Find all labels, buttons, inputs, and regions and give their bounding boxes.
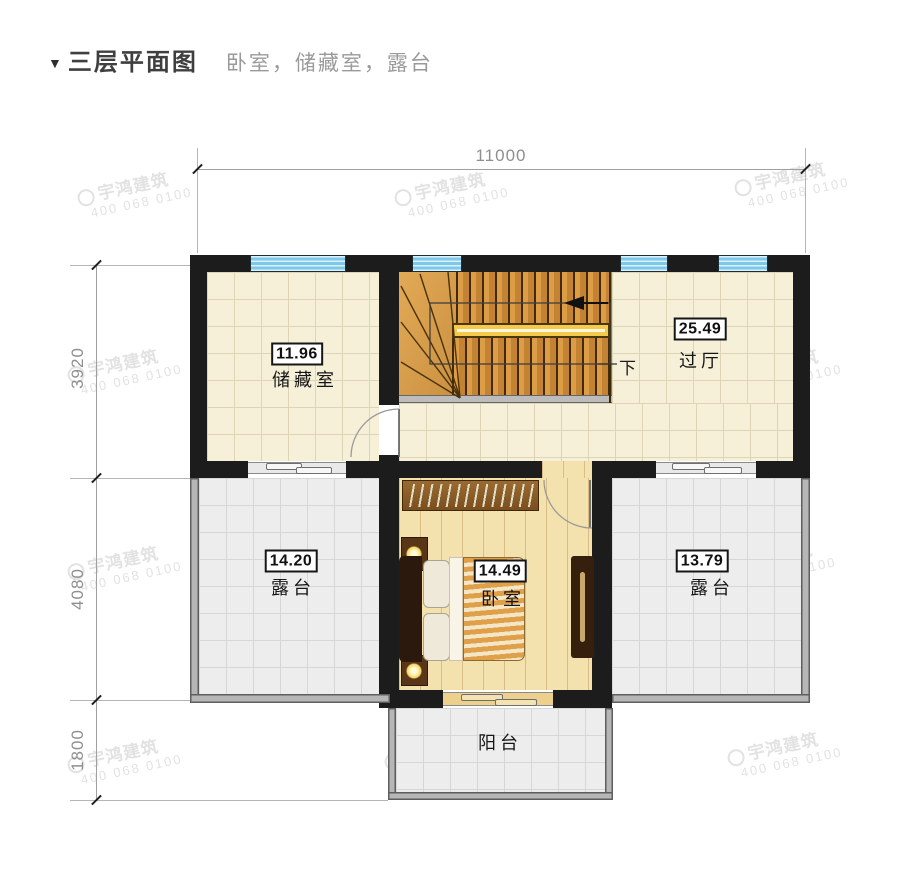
- door-panel: [296, 467, 332, 474]
- door-panel: [704, 467, 742, 474]
- wall-segment: [553, 690, 612, 708]
- wardrobe: [402, 480, 539, 511]
- wall-left: [190, 255, 207, 478]
- wall-segment: [668, 255, 718, 272]
- window: [620, 255, 668, 272]
- area-badge-terrace-left: 14.20: [265, 550, 318, 573]
- room-label-balcony: 阳台: [478, 729, 522, 755]
- dresser-handle: [580, 572, 585, 642]
- area-badge-bedroom: 14.49: [474, 560, 527, 583]
- door-panel: [495, 699, 537, 706]
- bed-headboard: [399, 556, 422, 662]
- extension-line: [70, 800, 388, 801]
- dimension-label-lower: 1800: [68, 729, 88, 771]
- wall-segment: [346, 461, 542, 478]
- parapet-terrace-left: [190, 694, 390, 703]
- parapet-balcony: [605, 708, 613, 800]
- sliding-door-terrace-left: [248, 462, 346, 474]
- area-badge-terrace-right: 13.79: [676, 550, 729, 573]
- window: [718, 255, 768, 272]
- window: [250, 255, 346, 272]
- stair-handrail: [452, 323, 610, 338]
- wall-segment: [756, 461, 810, 478]
- parapet-terrace-left: [190, 478, 199, 703]
- extension-line: [70, 700, 190, 701]
- room-label-bedroom: 卧室: [481, 585, 525, 611]
- hall-floor: [399, 403, 793, 461]
- extension-line: [197, 148, 198, 253]
- watermark: 宇鸿建筑400 068 0100: [726, 727, 844, 783]
- wall-segment: [190, 461, 248, 478]
- stair-flight-upper: [456, 272, 610, 323]
- watermark: 宇鸿建筑400 068 0100: [76, 167, 194, 223]
- room-label-terrace-left: 露台: [271, 574, 315, 600]
- room-label-storage: 储藏室: [272, 366, 338, 392]
- parapet-terrace-right: [801, 478, 810, 703]
- dimension-line-left: [96, 265, 97, 801]
- hanger-icons: [406, 484, 535, 507]
- area-badge-hall: 25.49: [674, 318, 727, 341]
- wall-bedroom-left: [379, 478, 399, 708]
- wall-storage-right: [379, 268, 399, 405]
- area-badge-storage: 11.96: [271, 343, 323, 366]
- extension-line: [70, 478, 190, 479]
- window: [412, 255, 462, 272]
- extension-line: [805, 148, 806, 253]
- bed-blanket-fold: [449, 557, 463, 661]
- dimension-line-top: [197, 169, 806, 170]
- plan-title: 三层平面图: [68, 42, 198, 77]
- dimension-label-width: 11000: [475, 146, 526, 166]
- dresser: [571, 556, 594, 658]
- sliding-door-terrace-right: [656, 462, 756, 474]
- room-label-terrace-right: 露台: [690, 574, 734, 600]
- watermark: 宇鸿建筑400 068 0100: [393, 167, 511, 223]
- pillow: [423, 613, 450, 661]
- page-title: ▼ 三层平面图 卧室，储藏室，露台: [48, 42, 433, 77]
- watermark: 宇鸿建筑400 068 0100: [733, 157, 851, 213]
- parapet-balcony: [388, 792, 613, 800]
- extension-line: [70, 265, 190, 266]
- dimension-label-upper: 3920: [68, 347, 88, 389]
- stair-edge-line: [609, 272, 611, 403]
- down-triangle-icon: ▼: [48, 55, 62, 71]
- parapet-terrace-right: [612, 694, 810, 703]
- room-label-hall: 过厅: [679, 347, 723, 373]
- dimension-label-middle: 4080: [68, 568, 88, 610]
- stair-landing-edge: [399, 395, 612, 403]
- stair-flight-lower: [452, 338, 610, 395]
- wall-right: [793, 255, 810, 478]
- floor-plan-page: ▼ 三层平面图 卧室，储藏室，露台 宇鸿建筑400 068 0100 宇鸿建筑4…: [0, 0, 910, 892]
- sliding-door-balcony: [443, 692, 553, 706]
- bedroom-door-opening: [542, 461, 592, 478]
- stair-down-label: 下: [619, 354, 636, 379]
- wall-segment: [592, 461, 656, 478]
- pillow: [423, 560, 450, 608]
- lamp-icon: [406, 663, 422, 679]
- handrail-stripe: [457, 329, 605, 332]
- plan-subtitle: 卧室，储藏室，露台: [226, 47, 433, 77]
- wall-bedroom-right: [592, 478, 612, 708]
- wall-segment: [462, 255, 620, 272]
- parapet-balcony: [388, 708, 396, 800]
